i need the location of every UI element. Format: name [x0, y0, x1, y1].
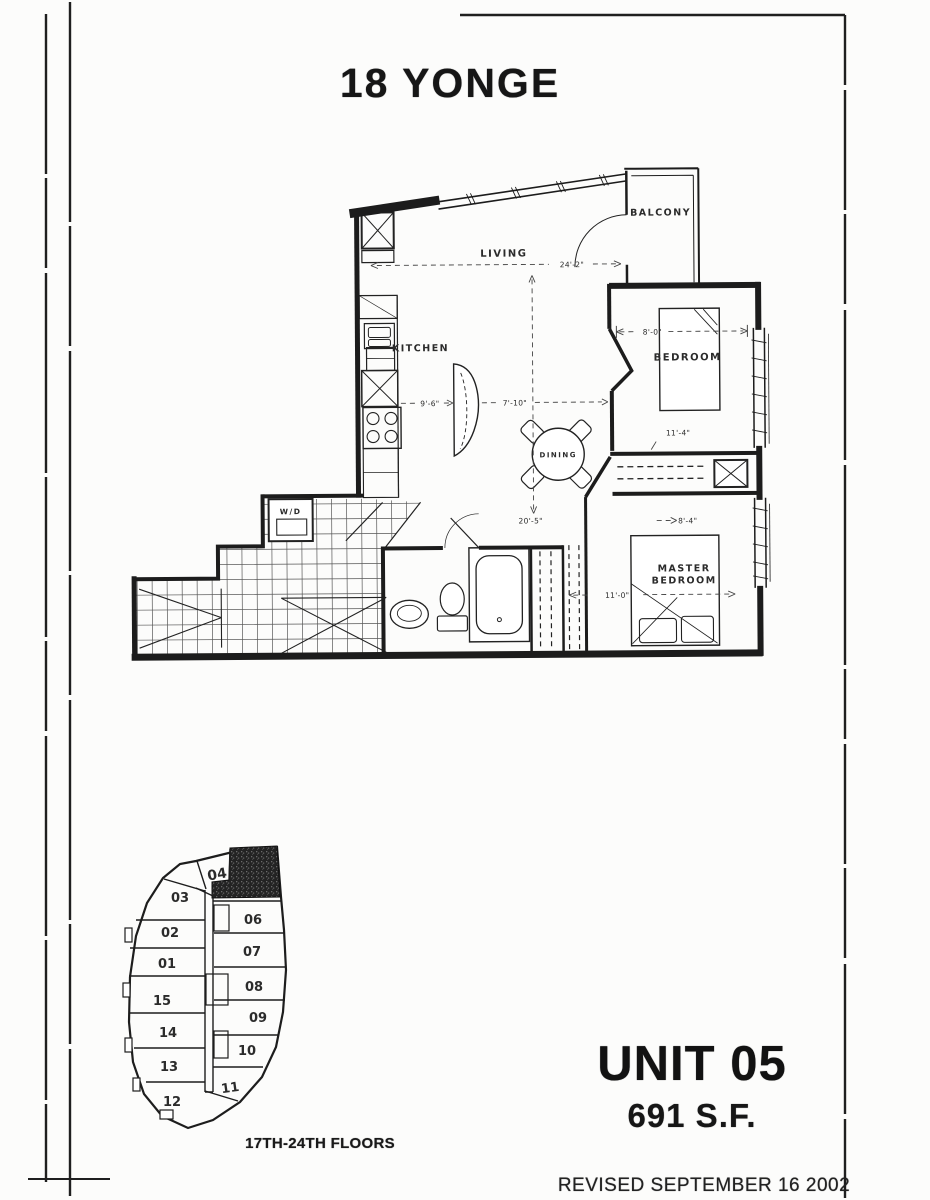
- room-label-wd: W/D: [280, 507, 302, 516]
- dim-master-depth: 11'-0": [605, 591, 629, 600]
- key-plan-unit-11: 11: [220, 1080, 240, 1097]
- room-label-dining: DINING: [539, 451, 577, 459]
- key-plan-unit-04: 04: [206, 865, 228, 884]
- dim-master-width: 8'-4": [678, 516, 697, 525]
- building-key-plan: 04 03 02 01 15 14 13 12 06 07 08 09 10 1…: [110, 835, 300, 1135]
- scanned-floorplan-page: 18 YONGE UNIT 05 691 S.F. REVISED SEPTEM…: [0, 0, 930, 1200]
- revision-date-note: REVISED SEPTEMBER 16 2002: [556, 1175, 852, 1197]
- key-plan-unit-15: 15: [153, 994, 171, 1009]
- room-label-kitchen: KITCHEN: [392, 343, 449, 354]
- room-label-master-line2: BEDROOM: [652, 575, 717, 586]
- bedroom-furniture: [616, 308, 747, 488]
- fixtures-and-furniture: [137, 210, 749, 654]
- key-plan-unit-01: 01: [158, 957, 176, 972]
- key-plan-unit-08: 08: [245, 980, 263, 995]
- washer-dryer-closet: [269, 498, 383, 541]
- dim-living-width: 24'-2": [560, 260, 584, 269]
- dim-bedroom-width: 8'-0": [643, 328, 662, 337]
- room-label-balcony: BALCONY: [630, 207, 691, 218]
- room-label-master-line1: MASTER: [658, 563, 711, 574]
- key-plan-unit-03: 03: [171, 891, 189, 906]
- kitchen-island: [454, 364, 479, 456]
- key-plan-unit-06: 06: [244, 913, 262, 928]
- living-window-wall: [436, 174, 627, 209]
- building-title: 18 YONGE: [310, 60, 590, 107]
- room-labels: LIVING BALCONY KITCHEN BEDROOM MASTER BE…: [278, 207, 723, 589]
- unit-floor-plan: LIVING BALCONY KITCHEN BEDROOM MASTER BE…: [118, 148, 782, 693]
- key-plan-floors-label: 17TH-24TH FLOORS: [210, 1135, 430, 1152]
- key-plan-unit-09: 09: [249, 1011, 267, 1026]
- unit-number-title: UNIT 05: [563, 1036, 821, 1092]
- room-label-living: LIVING: [480, 248, 527, 259]
- dim-living-depth: 20'-5": [519, 516, 543, 525]
- kitchen-shaft-box: [362, 212, 394, 262]
- unit-area-label: 691 S.F.: [563, 1097, 821, 1135]
- key-plan-unit-13: 13: [160, 1060, 178, 1075]
- room-label-bedroom: BEDROOM: [654, 352, 722, 363]
- dim-bedroom-depth: 11'-4": [666, 428, 690, 437]
- kitchen-appliances: [359, 295, 401, 497]
- dim-dining-width: 7'-10": [503, 398, 527, 407]
- bedroom-window: [751, 328, 769, 448]
- balcony-walls: [624, 168, 699, 286]
- bathroom-fixtures: [390, 513, 530, 642]
- key-plan-unit-14: 14: [159, 1026, 177, 1041]
- key-plan-unit-07: 07: [243, 945, 261, 960]
- master-bedroom-furniture: [631, 535, 720, 646]
- master-window: [753, 498, 771, 588]
- key-plan-unit-02: 02: [161, 926, 179, 941]
- dim-kitchen-width: 9'-6": [420, 399, 439, 408]
- key-plan-unit-10: 10: [238, 1044, 256, 1059]
- key-plan-unit-12: 12: [163, 1095, 181, 1110]
